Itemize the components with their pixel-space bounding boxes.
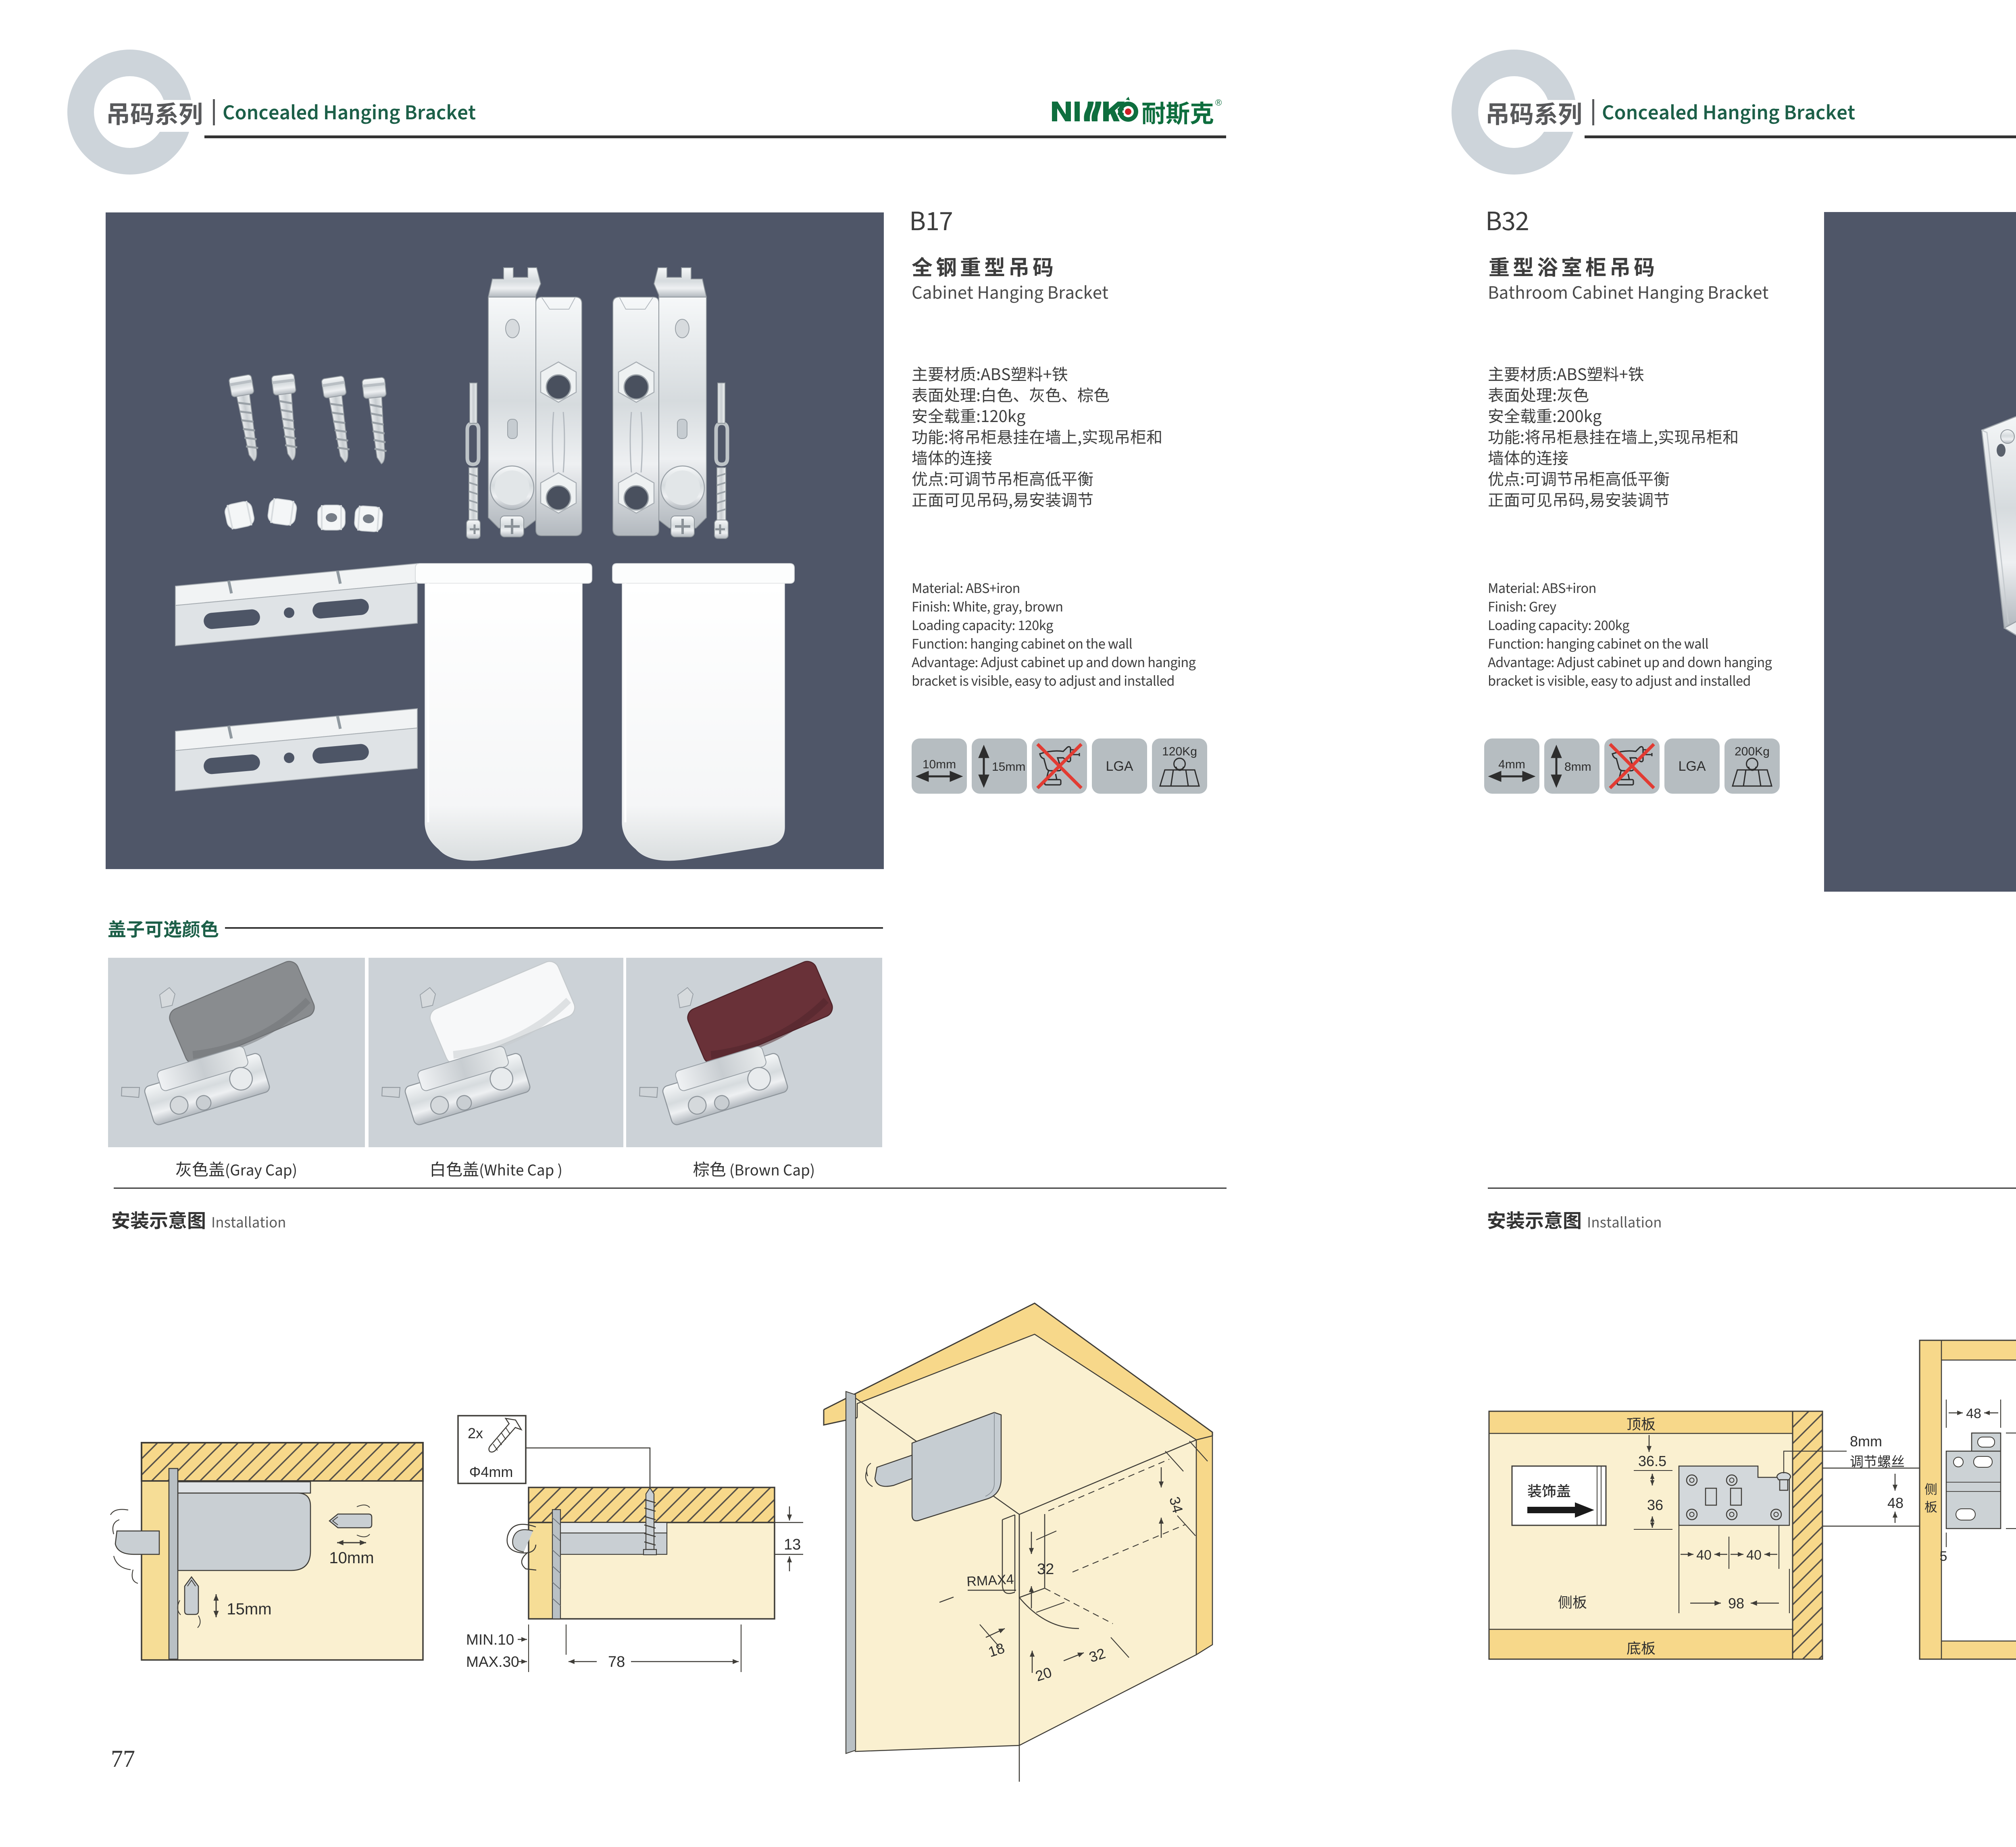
- svg-text:40: 40: [1746, 1547, 1762, 1563]
- svg-text:40: 40: [1696, 1547, 1712, 1563]
- svg-text:5: 5: [1940, 1549, 1947, 1564]
- svg-text:LGA: LGA: [1678, 759, 1706, 774]
- svg-text:MIN.10: MIN.10: [466, 1631, 514, 1648]
- svg-text:LGA: LGA: [1106, 759, 1133, 774]
- svg-text:10mm: 10mm: [923, 758, 956, 771]
- svg-text:78: 78: [608, 1654, 625, 1670]
- svg-text:77: 77: [111, 1745, 135, 1772]
- svg-text:10mm: 10mm: [329, 1549, 374, 1567]
- svg-text:98: 98: [1728, 1595, 1744, 1612]
- svg-text:36.5: 36.5: [1638, 1453, 1666, 1469]
- svg-text:RMAX4: RMAX4: [966, 1572, 1014, 1589]
- svg-text:MAX.30: MAX.30: [466, 1654, 519, 1670]
- svg-text:48: 48: [1966, 1406, 1981, 1421]
- svg-text:15mm: 15mm: [992, 760, 1025, 774]
- svg-text:8mm: 8mm: [1564, 760, 1591, 774]
- svg-text:15mm: 15mm: [227, 1600, 271, 1618]
- svg-text:120Kg: 120Kg: [1162, 745, 1197, 758]
- svg-text:13: 13: [784, 1536, 801, 1553]
- svg-text:4mm: 4mm: [1498, 758, 1525, 771]
- svg-text:Φ4mm: Φ4mm: [469, 1464, 513, 1480]
- svg-text:36: 36: [1647, 1497, 1663, 1513]
- svg-text:®: ®: [1215, 98, 1222, 108]
- svg-text:48: 48: [1887, 1495, 1904, 1511]
- svg-text:2x: 2x: [468, 1425, 483, 1441]
- svg-text:8mm: 8mm: [1850, 1433, 1882, 1450]
- svg-text:200Kg: 200Kg: [1735, 745, 1770, 758]
- svg-text:32: 32: [1037, 1561, 1054, 1578]
